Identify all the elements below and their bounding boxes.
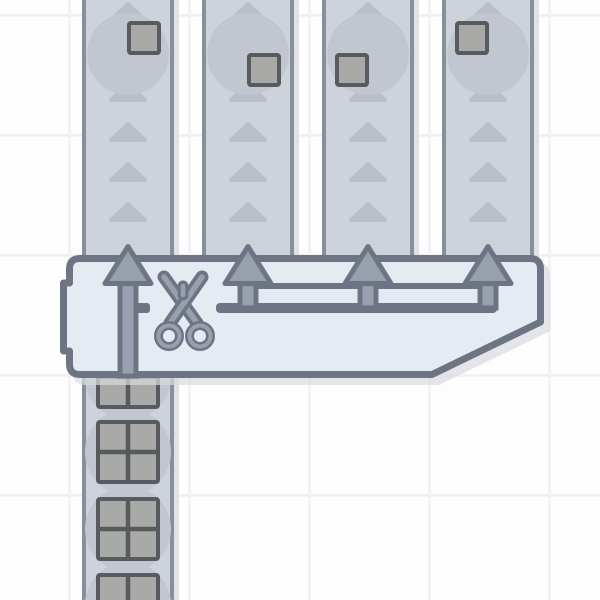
factory-grid-viewport[interactable] [0, 0, 600, 600]
shape-item-quadrant-bottom-left [327, 13, 409, 95]
shape-item-quadrant-top-left [447, 13, 529, 95]
input-shaft [120, 280, 136, 376]
building-cutter-quad[interactable] [64, 247, 547, 382]
shape-item-quadrant-bottom-right [207, 13, 289, 95]
shape-item-square-full [85, 409, 171, 495]
shape-item-square-full [85, 486, 171, 572]
shape-item-quadrant-top-right [87, 13, 169, 95]
game-canvas[interactable] [0, 0, 600, 600]
